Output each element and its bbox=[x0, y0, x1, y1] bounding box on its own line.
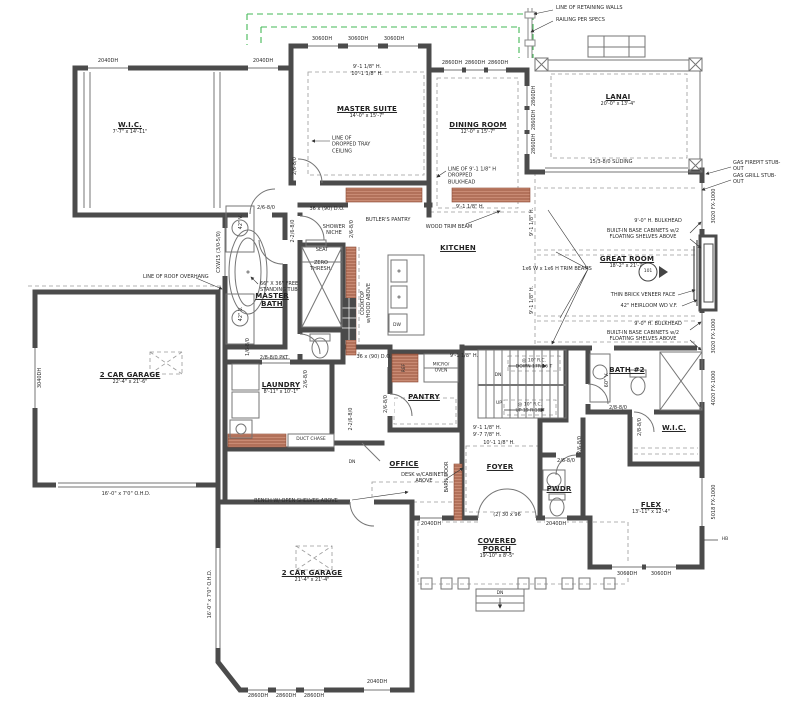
win-2860-g: 2860DH bbox=[248, 693, 268, 699]
note-stair-up: @ 10" R.C. UP 19 R 18 T bbox=[515, 402, 544, 413]
win-2860-b: 2860DH bbox=[465, 60, 485, 66]
note-shower-niche: SHOWER NICHE bbox=[323, 224, 345, 237]
win-3060-c: 3060DH bbox=[384, 36, 404, 42]
room-label-kitchen: KITCHEN bbox=[440, 244, 476, 252]
tag-window-101: 101 bbox=[644, 269, 653, 275]
tag-stair-dn: DN bbox=[495, 373, 502, 379]
tag-micro-oven: MICRO/ OVEN bbox=[433, 362, 450, 373]
room-label-wic-2: W.I.C. bbox=[662, 424, 686, 432]
labels-layer: W.I.C.7'-7" x 14'-11"MASTER SUITE14'-0" … bbox=[0, 0, 785, 704]
tag-stair-up: UP bbox=[496, 401, 502, 407]
note-free-standing-tub: 66" X 36" FREE STANDING TUB bbox=[260, 281, 298, 294]
tag-sliding-door: 15/3-8/0 SLIDING bbox=[589, 159, 632, 165]
win-3060-e: 3060DH bbox=[651, 571, 671, 577]
note-cooktop: COOKTOP w/HOOD ABOVE bbox=[360, 283, 373, 323]
win-3060-a: 3060DH bbox=[312, 36, 332, 42]
tag-vanity-42-1: 42" V. bbox=[238, 215, 244, 230]
room-label-covered-porch: COVERED PORCH19'-10" x 8'-5" bbox=[478, 537, 516, 559]
door-hall-2: 2/6-8/0 bbox=[349, 220, 355, 238]
note-gas-firepit: GAS FIREPIT STUB-OUT bbox=[733, 160, 785, 173]
door-pantry: 2/6-8/0 bbox=[383, 395, 389, 413]
room-name: 2 CAR GARAGE bbox=[282, 569, 343, 577]
door-pwdr-a: 2/6-8/0 bbox=[557, 458, 575, 464]
note-builtin-1: BUILT-IN BASE CABINETS w/2 FLOATING SHEL… bbox=[607, 228, 679, 241]
height-3: 9'-1 1/8" H. bbox=[456, 204, 484, 210]
door-master: 2/6-8/0 bbox=[292, 157, 298, 175]
room-label-great-room: GREAT ROOM18'-2" x 21'-7" bbox=[600, 255, 654, 269]
win-4020-fx: 4020 FX-1000 bbox=[711, 371, 717, 406]
room-name: KITCHEN bbox=[440, 244, 476, 252]
room-name: MASTER BATH bbox=[255, 292, 289, 308]
door-wc: 1/6-8/0 bbox=[245, 338, 251, 356]
room-name: 2 CAR GARAGE bbox=[100, 371, 161, 379]
door-bath2-a: 2/8-8/0 bbox=[609, 405, 627, 411]
tag-vanity-60: 60" V. bbox=[604, 373, 610, 388]
note-railing: RAILING PER SPECS bbox=[556, 17, 605, 23]
win-2040-d: 2040DH bbox=[546, 521, 566, 527]
note-bench: BENCH W/ OPEN SHELVES ABOVE bbox=[254, 498, 338, 504]
room-name: OFFICE bbox=[389, 460, 418, 468]
door-bath2-b: 2/8-8/0 bbox=[637, 418, 643, 436]
door-laundry: 2/6-8/0 bbox=[303, 370, 309, 388]
room-name: MASTER SUITE bbox=[337, 105, 397, 113]
door-mud-opening: 36 x (90) D.O. bbox=[356, 354, 391, 360]
win-2860-d: 2860DH bbox=[531, 86, 537, 106]
tag-window-cxw: CXW15 (3/0-5/0) bbox=[216, 231, 222, 273]
door-wic1: 2/6-8/0 bbox=[257, 205, 275, 211]
note-tray-ceiling: LINE OF DROPPED TRAY CEILING bbox=[332, 136, 370, 155]
height-5: 9'-1 1/8" H. bbox=[529, 286, 535, 314]
height-4: 9'-1 1/8" H. bbox=[529, 208, 535, 236]
note-bulkhead-1: 9'-0" H. BULKHEAD bbox=[634, 218, 682, 224]
win-2040-c: 2040DH bbox=[421, 521, 441, 527]
win-2860-e: 2860DH bbox=[531, 110, 537, 130]
room-label-pwdr: PWDR bbox=[547, 485, 572, 493]
room-name: LANAI bbox=[601, 93, 636, 101]
tag-vanity-42-2: 42" V. bbox=[238, 307, 244, 322]
note-seat: SEAT bbox=[316, 247, 328, 253]
note-bulkhead-2: 9'-0" H. BULKHEAD bbox=[634, 321, 682, 327]
room-dims: 21'-4" x 21'-4" bbox=[282, 578, 343, 583]
note-wood-trim-beam: WOOD TRIM BEAM bbox=[426, 224, 472, 230]
room-dims: 14'-0" x 15'-7" bbox=[337, 114, 397, 119]
win-3040: 3040DH bbox=[37, 368, 43, 388]
note-dropped-bulkhead: LINE OF 9'-1 1/8" H DROPPED BULKHEAD bbox=[448, 167, 496, 186]
door-front: (2) 30 x 96 bbox=[493, 512, 521, 518]
note-butlers-pantry: BUTLER'S PANTRY bbox=[366, 217, 411, 223]
room-label-wic-1: W.I.C.7'-7" x 14'-11" bbox=[113, 121, 148, 135]
win-3020-fx-2: 3020 FX-1000 bbox=[711, 319, 717, 354]
room-name: BATH #2 bbox=[609, 366, 644, 374]
tag-dn-step: DN bbox=[349, 460, 356, 466]
room-label-bath-2: BATH #2 bbox=[609, 366, 644, 374]
room-name: W.I.C. bbox=[662, 424, 686, 432]
tag-dw: DW bbox=[393, 323, 401, 329]
room-dims: 13'-11" x 12'-4" bbox=[632, 510, 670, 515]
win-3060-b: 3060DH bbox=[348, 36, 368, 42]
note-builtin-2: BUILT-IN BASE CABINETS w/2 FLOATING SHEL… bbox=[607, 330, 679, 343]
win-3060-d: 3060DH bbox=[617, 571, 637, 577]
note-gas-grill: GAS GRILL STUB-OUT bbox=[733, 173, 785, 186]
room-label-garage-left: 2 CAR GARAGE22'-4" x 21'-6" bbox=[100, 371, 161, 385]
room-label-garage-bottom: 2 CAR GARAGE21'-4" x 21'-4" bbox=[282, 569, 343, 583]
room-name: PANTRY bbox=[408, 393, 440, 401]
win-2040-e: 2040DH bbox=[367, 679, 387, 685]
room-name: PWDR bbox=[547, 485, 572, 493]
win-2860-f: 2860DH bbox=[531, 134, 537, 154]
win-2860-c: 2860DH bbox=[488, 60, 508, 66]
note-zero-thresh: ZERO THRESH. bbox=[310, 260, 332, 273]
room-name: W.I.C. bbox=[113, 121, 148, 129]
room-label-office: OFFICE bbox=[389, 460, 418, 468]
note-stair-down: @ 10" R.C. DOWN 17R 16 T bbox=[516, 358, 552, 369]
room-label-laundry: LAUNDRY8'-11" x 10'-1" bbox=[262, 381, 301, 395]
height-1: 9'-1 1/8" H. bbox=[353, 64, 381, 70]
win-2040-a: 2040DH bbox=[98, 58, 118, 64]
win-5018-fx: 5018 FX-1000 bbox=[711, 485, 717, 520]
room-name: DINING ROOM bbox=[449, 121, 506, 129]
door-mud: 2-2/6-8/0 bbox=[348, 408, 354, 431]
room-label-lanai: LANAI20'-0" x 13'-4" bbox=[601, 93, 636, 107]
room-label-flex: FLEX13'-11" x 12'-4" bbox=[632, 501, 670, 515]
win-3020-fx-1: 3020 FX-1000 bbox=[711, 189, 717, 224]
door-butler-opening: 36 x (90) D.O. bbox=[309, 206, 344, 212]
room-dims: 8'-11" x 10'-1" bbox=[262, 390, 301, 395]
height-7: 9'-1 1/8" H. bbox=[473, 425, 501, 431]
room-dims: 19'-10" x 8'-5" bbox=[478, 554, 516, 559]
note-roof-overhang: LINE OF ROOF OVERHANG bbox=[143, 274, 209, 280]
room-name: FLEX bbox=[632, 501, 670, 509]
note-barn-door: BARN DOOR bbox=[444, 462, 450, 493]
door-pwdr-b: 2/6-8/0 bbox=[577, 436, 583, 454]
door-hall-1: 2-2/6-8/0 bbox=[290, 220, 296, 243]
tag-porch-dn: DN bbox=[497, 591, 504, 597]
room-dims: 22'-4" x 21'-6" bbox=[100, 380, 161, 385]
height-8: 9'-7 7/8" H. bbox=[473, 432, 501, 438]
tag-ref: REF bbox=[402, 364, 408, 373]
height-9: 10'-1 1/8" H. bbox=[483, 440, 515, 446]
room-dims: 12'-0" x 15'-7" bbox=[449, 130, 506, 135]
room-name: FOYER bbox=[487, 463, 514, 471]
room-name: COVERED PORCH bbox=[478, 537, 516, 553]
door-laundry-pkt: 2/8-8/0 PKT bbox=[260, 355, 288, 361]
tag-hose-bib: HB bbox=[722, 537, 728, 543]
room-name: GREAT ROOM bbox=[600, 255, 654, 263]
note-heirloom-fireplace: 42" HEIRLOOM WD V.F. bbox=[621, 303, 678, 309]
room-name: LAUNDRY bbox=[262, 381, 301, 389]
room-label-master-bath: MASTER BATH bbox=[255, 292, 289, 308]
note-thin-brick: THIN BRICK VENEER FACE bbox=[611, 292, 675, 298]
floor-plan-canvas: W.I.C.7'-7" x 14'-11"MASTER SUITE14'-0" … bbox=[0, 0, 785, 704]
room-label-dining-room: DINING ROOM12'-0" x 15'-7" bbox=[449, 121, 506, 135]
note-desk: DESK w/CABINETS ABOVE bbox=[401, 472, 447, 485]
room-label-master-suite: MASTER SUITE14'-0" x 15'-7" bbox=[337, 105, 397, 119]
tag-ohd-1: 16'-0" x 7'0" O.H.D. bbox=[102, 491, 151, 497]
room-label-pantry: PANTRY bbox=[408, 393, 440, 401]
room-label-foyer: FOYER bbox=[487, 463, 514, 471]
room-dims: 20'-0" x 13'-4" bbox=[601, 102, 636, 107]
height-6: 9'-1 1/8" H. bbox=[450, 353, 478, 359]
room-dims: 7'-7" x 14'-11" bbox=[113, 130, 148, 135]
height-2: 10'-1 1/8" H. bbox=[351, 71, 383, 77]
note-retaining-walls: LINE OF RETAINING WALLS bbox=[556, 5, 623, 11]
tag-ohd-2: 16'-0" x 7'0" O.H.D. bbox=[207, 570, 213, 619]
win-2860-a: 2860DH bbox=[442, 60, 462, 66]
note-trim-beams: 1x6 W x 1x6 H TRIM BEAMS bbox=[522, 266, 592, 272]
win-2860-i: 2860DH bbox=[304, 693, 324, 699]
win-2860-h: 2860DH bbox=[276, 693, 296, 699]
note-duct-chase: DUCT CHASE bbox=[296, 437, 325, 443]
win-2040-b: 2040DH bbox=[253, 58, 273, 64]
